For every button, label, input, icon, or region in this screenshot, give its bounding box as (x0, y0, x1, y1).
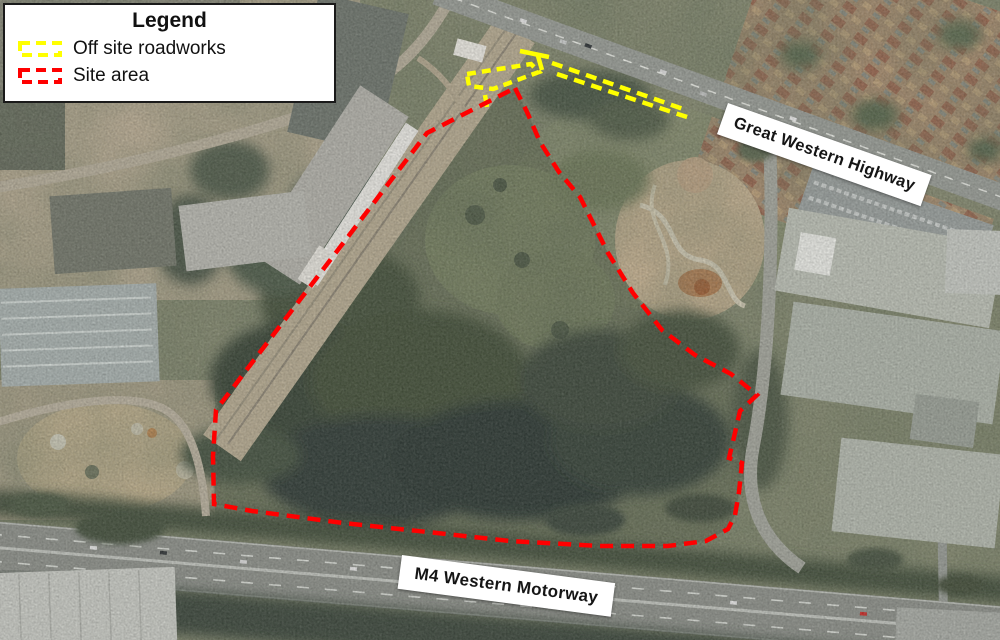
legend: Legend Off site roadworks Site area (3, 3, 336, 103)
offsite-roadworks-swatch (17, 40, 63, 58)
legend-item-offsite-roadworks: Off site roadworks (17, 38, 334, 60)
legend-item-site-area: Site area (17, 65, 334, 87)
legend-title: Legend (5, 9, 334, 33)
legend-item-label: Site area (73, 65, 149, 87)
site-area-swatch (17, 67, 63, 85)
legend-item-label: Off site roadworks (73, 38, 226, 60)
aerial-map: Great Western Highway M4 Western Motorwa… (0, 0, 1000, 640)
